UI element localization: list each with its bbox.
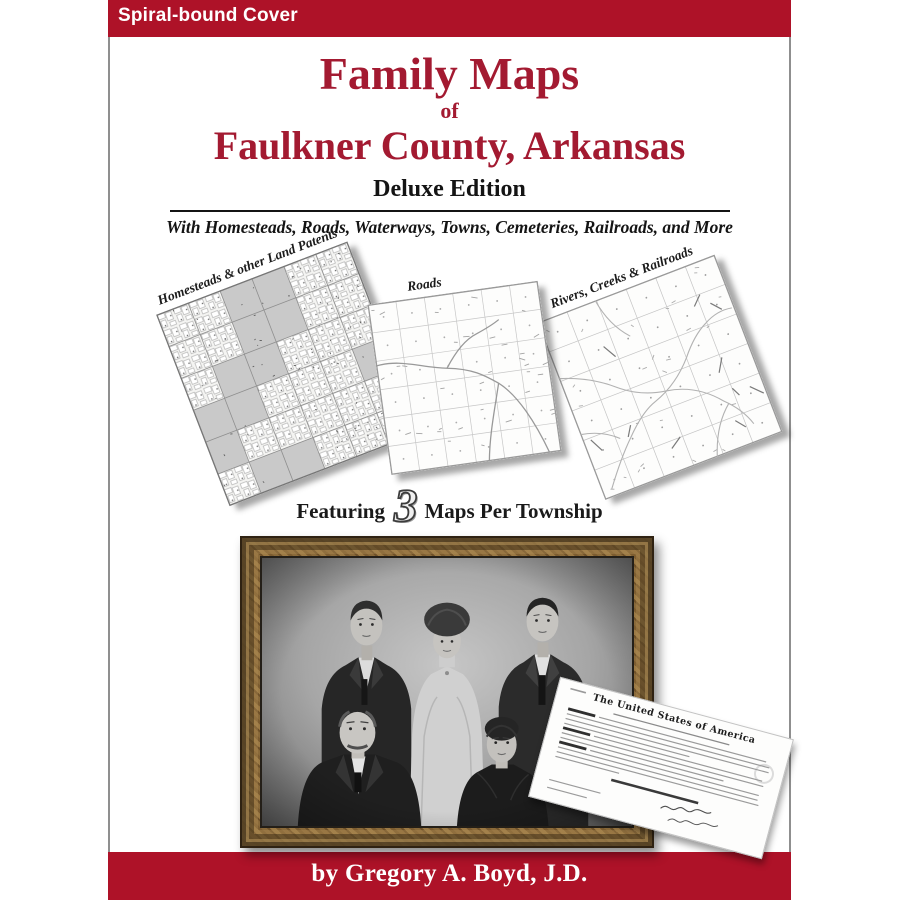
author-byline: by Gregory A. Boyd, J.D. bbox=[311, 860, 587, 892]
title-rule bbox=[170, 210, 730, 212]
tagline-number: 3 bbox=[394, 483, 418, 530]
title-line-2: Faulkner County, Arkansas bbox=[108, 124, 791, 168]
title-connector: of bbox=[108, 100, 791, 122]
book-cover-page: Spiral-bound Cover Family Maps of Faulkn… bbox=[0, 0, 900, 900]
binding-type-label: Spiral-bound Cover bbox=[108, 0, 791, 27]
title-block: Family Maps of Faulkner County, Arkansas… bbox=[108, 50, 791, 238]
map-roads: Roads bbox=[364, 259, 561, 475]
title-line-1: Family Maps bbox=[108, 50, 791, 98]
cover: Spiral-bound Cover Family Maps of Faulkn… bbox=[108, 0, 791, 900]
map-rivers: Rivers, Creeks & Railroads bbox=[529, 234, 782, 500]
author-bar: by Gregory A. Boyd, J.D. bbox=[108, 852, 791, 900]
tagline-rest: Maps Per Township bbox=[424, 499, 602, 524]
tagline-featuring: Featuring bbox=[296, 499, 385, 524]
edition-label: Deluxe Edition bbox=[108, 176, 791, 203]
tagline: Featuring 3 Maps Per Township bbox=[108, 488, 791, 535]
binding-type-banner: Spiral-bound Cover bbox=[108, 0, 791, 37]
map-roads-sheet bbox=[367, 281, 561, 475]
subtitle: With Homesteads, Roads, Waterways, Towns… bbox=[108, 217, 791, 238]
